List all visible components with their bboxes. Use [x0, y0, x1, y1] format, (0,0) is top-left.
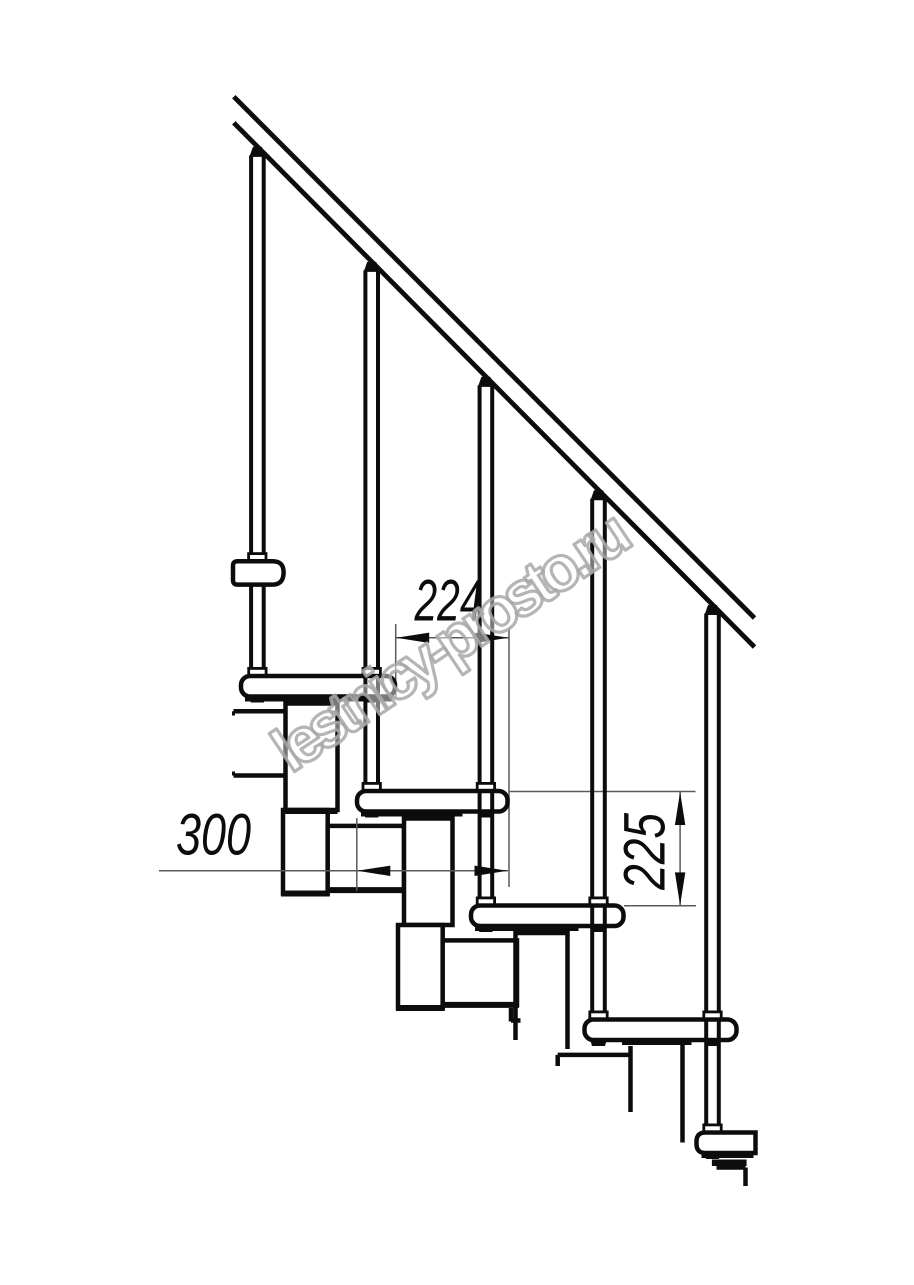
svg-text:300: 300 — [176, 802, 251, 867]
svg-text:225: 225 — [613, 812, 678, 890]
